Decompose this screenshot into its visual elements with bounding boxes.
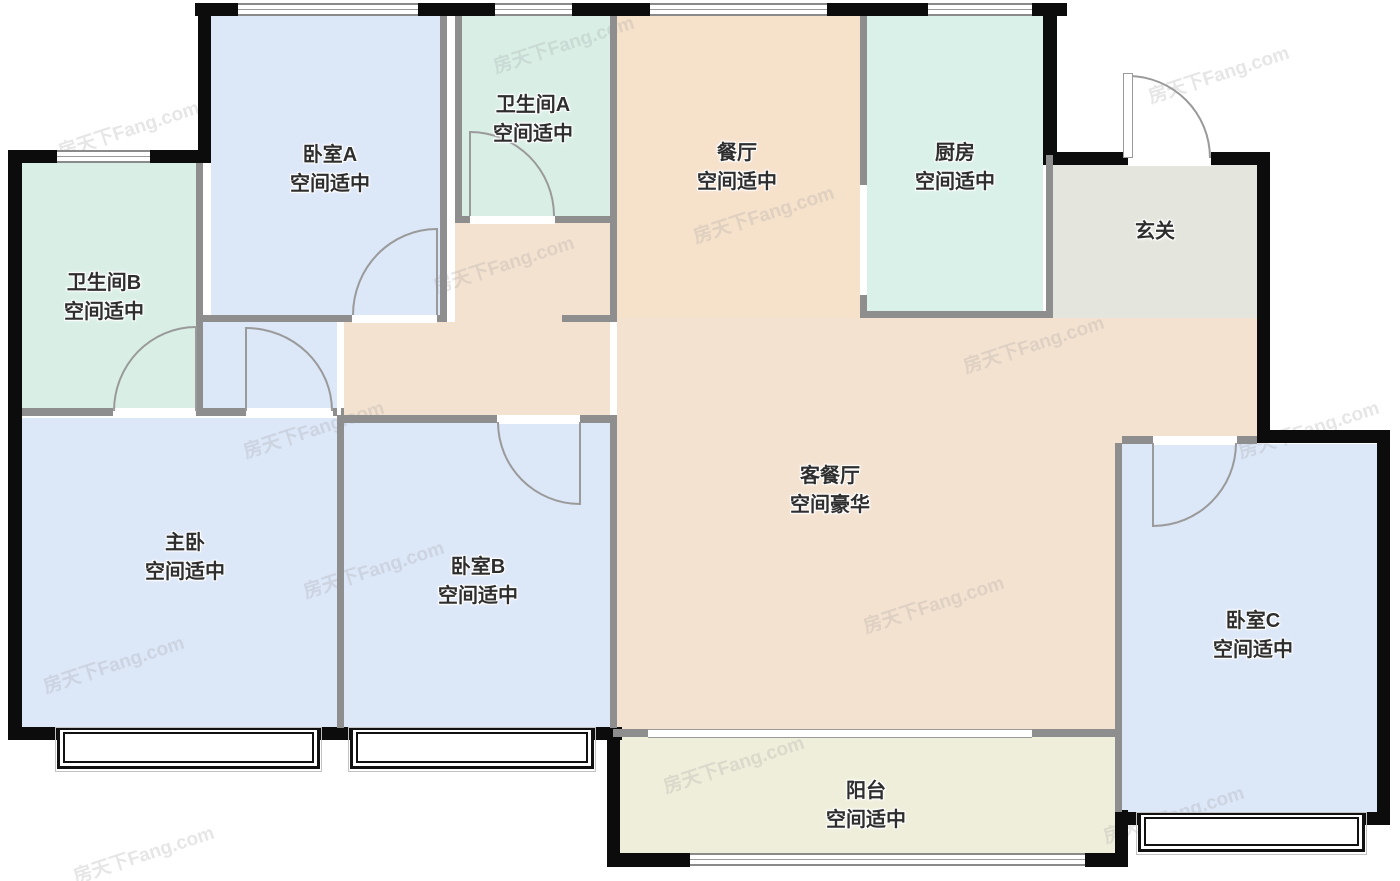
exterior-wall [1043,152,1128,165]
room-size-note: 空间适中 [697,168,777,197]
door-opening [447,16,455,223]
interior-wall [555,216,617,223]
interior-wall [440,16,447,322]
window [57,150,150,163]
door-leaf [469,131,471,216]
door-opening [352,315,437,323]
room-size-note: 空间适中 [290,170,370,199]
room-name: 餐厅 [697,139,777,168]
room-name: 卧室A [290,141,370,170]
room-size-note: 空间豪华 [790,491,870,520]
bay-window [1138,812,1365,852]
room-label-master: 主卧空间适中 [145,529,225,587]
entry-door-leaf [1123,73,1133,158]
room-size-note: 空间适中 [493,120,573,149]
bay-window [350,727,594,769]
room-label-bedroom-a: 卧室A空间适中 [290,141,370,199]
room-name: 卧室B [438,553,518,582]
door-leaf [195,326,197,411]
exterior-wall [8,727,60,740]
interior-wall [1122,436,1153,444]
room-label-balcony: 阳台空间适中 [826,777,906,835]
interior-wall [610,415,617,728]
door-leaf [245,327,247,411]
room-size-note: 空间适中 [1213,636,1293,665]
room-label-bedroom-c: 卧室C空间适中 [1213,607,1293,665]
interior-wall [344,415,497,423]
room-label-bedroom-b: 卧室B空间适中 [438,553,518,611]
room-label-dining: 餐厅空间适中 [697,139,777,197]
door-opening [860,185,867,295]
exterior-wall [1257,430,1390,443]
interior-wall [203,408,246,416]
door-arc-entry [1128,75,1211,158]
interior-wall [1237,436,1257,444]
room-size-note: 空间适中 [915,168,995,197]
window [690,853,1085,866]
room-label-kitchen: 厨房空间适中 [915,139,995,197]
room-size-note: 空间适中 [438,582,518,611]
door-opening [470,216,555,224]
window [238,3,418,16]
room-label-bathroom-b: 卫生间B空间适中 [64,269,144,327]
floor-plan: 房天下Fang.com房天下Fang.com房天下Fang.com房天下Fang… [0,0,1400,881]
room-size-note: 空间适中 [826,806,906,835]
door-leaf [579,422,581,505]
room-name: 玄关 [1135,218,1175,247]
interior-wall [455,216,470,223]
room-area-corridor [344,322,610,415]
interior-wall [610,16,617,322]
room-name: 阳台 [826,777,906,806]
exterior-wall [1115,812,1138,825]
room-label-living: 客餐厅空间豪华 [790,462,870,520]
exterior-wall [827,3,928,16]
balcony-sliding-door [648,729,1032,738]
bay-window [57,727,320,769]
interior-wall [1115,443,1122,812]
interior-wall [613,729,648,737]
room-size-note: 空间适中 [64,298,144,327]
room-area-corridor [455,223,610,322]
window [928,3,1032,16]
interior-wall [1046,155,1053,318]
interior-wall [437,315,447,322]
exterior-wall [1377,430,1390,825]
exterior-wall [607,727,620,867]
room-name: 厨房 [915,139,995,168]
interior-wall [1032,729,1115,737]
door-leaf [1152,443,1154,527]
window [650,3,827,16]
interior-wall [455,16,462,223]
room-name: 主卧 [145,529,225,558]
exterior-wall [8,150,22,740]
room-name: 卫生间A [493,91,573,120]
interior-wall [562,315,617,322]
exterior-wall [607,853,690,867]
exterior-wall [1043,3,1057,155]
window [495,3,572,16]
room-name: 卫生间B [64,269,144,298]
room-label-bathroom-a: 卫生间A空间适中 [493,91,573,149]
exterior-wall [198,3,211,163]
interior-wall [337,415,344,728]
interior-wall [196,408,203,416]
exterior-wall [1257,152,1270,443]
interior-wall [860,311,1053,318]
interior-wall [22,408,113,416]
interior-wall [196,163,203,408]
room-size-note: 空间适中 [145,558,225,587]
interior-wall [860,16,867,185]
watermark-text: 房天下Fang.com [69,818,217,881]
door-leaf [436,228,438,315]
exterior-wall [418,3,495,16]
room-name: 客餐厅 [790,462,870,491]
door-opening [337,322,341,415]
exterior-wall [320,727,350,740]
room-name: 卧室C [1213,607,1293,636]
room-label-foyer: 玄关 [1135,218,1175,247]
interior-wall [203,315,352,322]
exterior-wall [150,150,203,163]
exterior-wall [572,3,650,16]
